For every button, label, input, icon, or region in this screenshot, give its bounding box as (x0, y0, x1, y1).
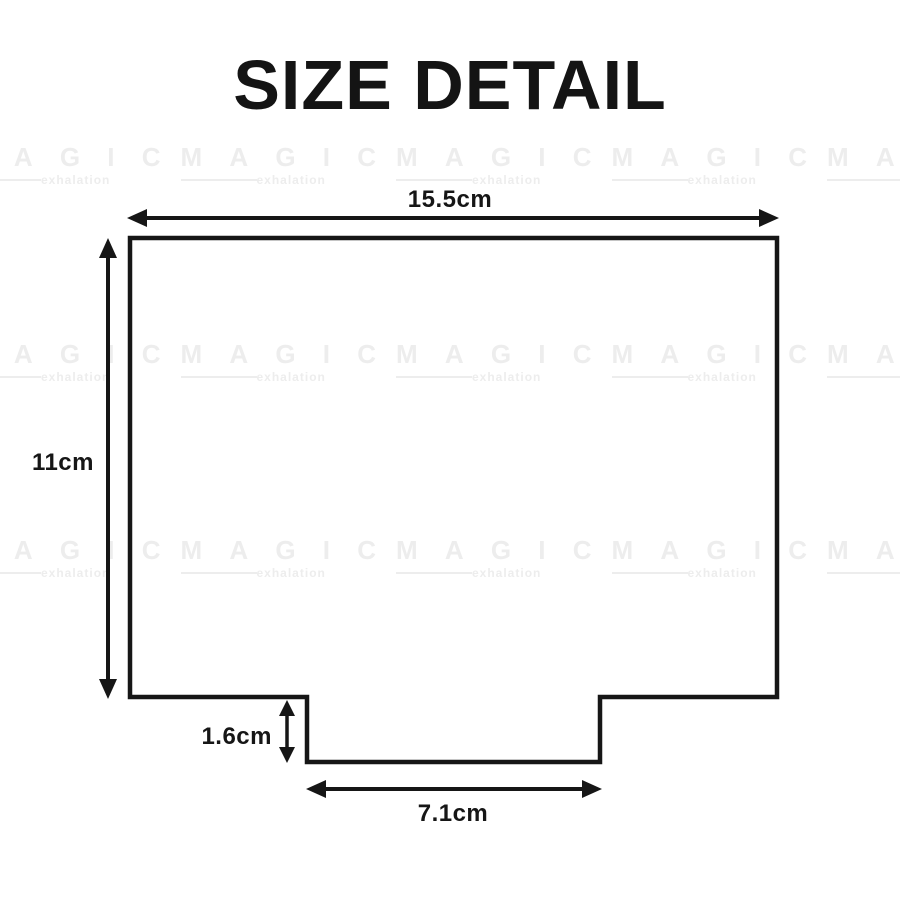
product-outline-shape (130, 238, 777, 762)
dimension-diagram (0, 0, 900, 900)
tab-depth-dimension-arrow (279, 700, 295, 763)
page-title: SIZE DETAIL (0, 50, 900, 120)
tab-width-dimension-label: 7.1cm (303, 802, 603, 826)
arrowhead-up-icon (279, 700, 295, 716)
arrowhead-down-icon (99, 679, 117, 699)
arrowhead-left-icon (306, 780, 326, 798)
tab-depth-dimension-label: 1.6cm (180, 725, 272, 749)
arrowhead-up-icon (99, 238, 117, 258)
height-dimension-arrow (99, 238, 117, 699)
arrowhead-down-icon (279, 747, 295, 763)
arrowhead-right-icon (582, 780, 602, 798)
width-dimension-label: 15.5cm (0, 188, 900, 212)
tab-width-dimension-arrow (306, 780, 602, 798)
size-detail-figure: M A G I CexhalationM A G I CexhalationM … (0, 0, 900, 900)
height-dimension-label: 11cm (18, 451, 94, 475)
